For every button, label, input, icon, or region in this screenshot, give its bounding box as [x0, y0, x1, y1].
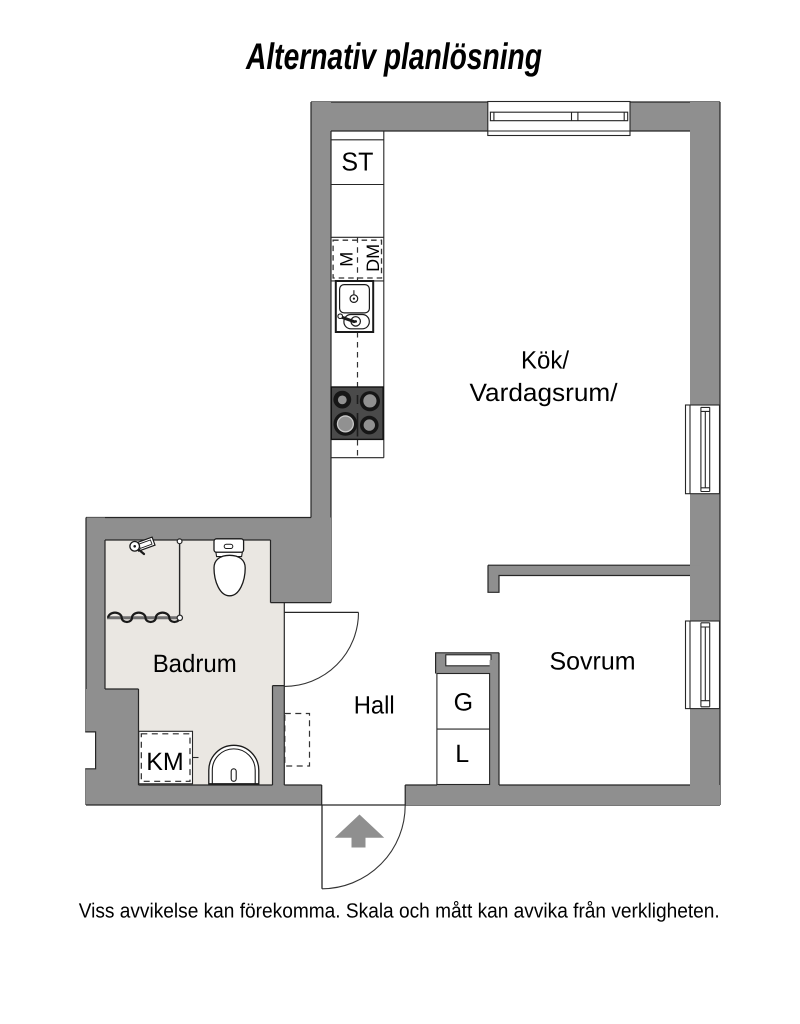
svg-text:L: L [455, 740, 469, 768]
svg-text:Alternativ planlösning: Alternativ planlösning [245, 36, 542, 77]
svg-text:Vardagsrum/: Vardagsrum/ [470, 379, 618, 407]
svg-text:Viss avvikelse kan förekomma.: Viss avvikelse kan förekomma. Skala och … [79, 899, 720, 922]
svg-text:KM: KM [146, 748, 184, 776]
svg-text:ST: ST [341, 147, 373, 177]
svg-text:Hall: Hall [354, 692, 395, 720]
svg-text:M: M [336, 252, 356, 267]
svg-text:Badrum: Badrum [153, 650, 237, 678]
svg-text:Kök/: Kök/ [521, 346, 569, 374]
svg-text:G: G [454, 688, 473, 716]
svg-text:DM: DM [363, 244, 383, 272]
svg-text:Sovrum: Sovrum [550, 648, 636, 676]
